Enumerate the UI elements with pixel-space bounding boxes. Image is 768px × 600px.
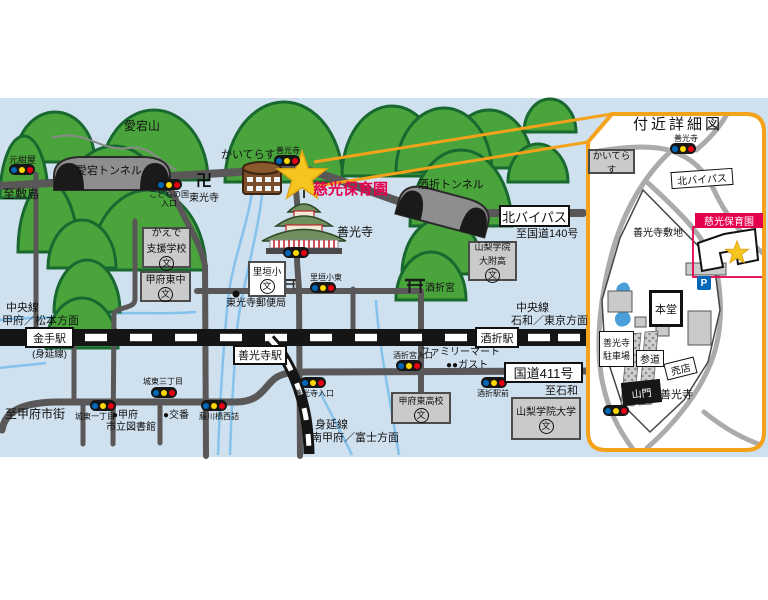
school-mark-icon: 文 xyxy=(414,408,429,423)
kofu-higashi-hs-box: 甲府東高校 文 xyxy=(391,392,451,424)
to-isawa-label: 至石和 xyxy=(545,385,578,398)
kaiterasu-label: かいてらす xyxy=(221,149,275,162)
mountain-label: 愛宕山 xyxy=(124,120,160,134)
rail-dash xyxy=(355,334,377,341)
post-office-dot xyxy=(233,291,240,298)
signal-label-kodomonokuni: こどもの国 入口 xyxy=(143,190,195,208)
kanade-station-box: 金手駅 xyxy=(25,327,74,348)
inset-parking-box: 善光寺 駐車場 xyxy=(599,331,634,367)
rail-dash xyxy=(130,334,152,341)
school-mark-icon: 文 xyxy=(159,256,174,271)
traffic-signal-icon xyxy=(396,360,422,371)
chuo-right-direction-label: 石和／東京方面 xyxy=(511,315,588,328)
to-route140-label: 至国道140号 xyxy=(516,228,578,241)
chuo-left-line-label: 中央線 xyxy=(6,302,39,315)
kaede-school-box: かえで 支援学校 文 xyxy=(142,227,191,268)
familymart-label: ファミリーマート xyxy=(420,347,500,359)
kanade-station-note: (身延線) xyxy=(25,350,74,361)
traffic-signal-icon xyxy=(603,405,629,416)
traffic-signal-icon xyxy=(9,164,35,175)
chuo-right-line-label: 中央線 xyxy=(516,302,549,315)
minobu-direction-label: 南甲府／富士方面 xyxy=(311,432,399,445)
minobu-line-label: 身延線 xyxy=(315,419,348,432)
parking-icon: P xyxy=(697,276,711,290)
school-mark-icon: 文 xyxy=(158,287,173,302)
traffic-signal-icon xyxy=(156,179,182,190)
rail-dash xyxy=(85,334,107,341)
sakaori-tunnel-label: 酒折トンネル xyxy=(418,179,484,192)
signal-label-joto1: 城東一丁目 xyxy=(75,412,115,421)
rail-dash xyxy=(445,334,467,341)
school-mark-icon: 文 xyxy=(485,268,500,283)
signal-label-zenkoji-iriguchi: 善光寺入口 xyxy=(294,389,334,398)
inset-grounds-label: 善光寺敷地 xyxy=(633,228,683,240)
traffic-signal-icon xyxy=(274,155,300,166)
school-mark-icon: 文 xyxy=(539,419,554,434)
rail-dash xyxy=(528,334,550,341)
inset-kaiterasu-box: かいてらす xyxy=(588,149,635,174)
inset-signal-label-zenkoji: 善光寺 xyxy=(674,134,698,143)
rail-dash xyxy=(400,334,422,341)
manji-temple-icon: 卍 xyxy=(196,173,212,191)
school-mark-icon: 文 xyxy=(260,279,275,294)
zenkoji-temple-label: 善光寺 xyxy=(337,226,373,240)
traffic-signal-icon xyxy=(300,377,326,388)
post-office-label: 東光寺郵便局 xyxy=(226,298,286,310)
traffic-signal-icon xyxy=(670,143,696,154)
library-label: ●甲府 市立図書館 xyxy=(112,410,156,433)
yamanashi-gakuin-univ-box: 山梨学院大学 文 xyxy=(511,397,581,440)
rail-dash xyxy=(310,334,332,341)
to-kofu-city-label: 至甲府市街 xyxy=(5,408,65,422)
atago-tunnel-label: 愛宕トンネル xyxy=(76,165,142,178)
koban-label: ●交番 xyxy=(163,410,189,422)
inset-zenkoji-label: 善光寺 xyxy=(660,389,693,402)
inset-sanmon-box: 山門 xyxy=(621,379,662,406)
tokoji-label: 東光寺 xyxy=(189,193,219,205)
kaiterasu-building-icon xyxy=(243,162,281,194)
sakaorigu-label: 酒折宮 xyxy=(425,283,455,295)
signal-label-joto3: 城東三丁目 xyxy=(143,377,183,386)
to-shikishima-label: 至敷島 xyxy=(3,188,39,202)
traffic-signal-icon xyxy=(283,247,309,258)
inset-title: 付近詳細図 xyxy=(618,116,738,133)
signal-label-satogaki-higashi: 里垣小東 xyxy=(310,273,342,282)
sakaori-station-box: 酒折駅 xyxy=(475,327,519,348)
inset-hondo-box: 本堂 xyxy=(649,290,683,327)
yamanashi-gakuin-hs-box: 山梨学院 大附高 文 xyxy=(468,241,517,281)
inset-nursery-label: 慈光保育園 xyxy=(695,213,763,228)
route411-box: 国道411号 xyxy=(504,362,583,383)
signal-label-zenkoji: 善光寺 xyxy=(276,146,300,155)
kofu-higashi-jhs-box: 甲府東中 文 xyxy=(140,271,191,302)
signal-label-fujikawabashi: 藤川橋西詰 xyxy=(199,412,239,421)
rail-dash xyxy=(175,334,197,341)
kita-bypass-box: 北バイパス xyxy=(499,205,570,227)
traffic-signal-icon xyxy=(151,387,177,398)
satogaki-es-box: 里垣小 文 xyxy=(248,261,286,297)
nursery-name-label: 慈光保育園 xyxy=(313,181,388,198)
zenkoji-station-box: 善光寺駅 xyxy=(233,345,287,365)
gusto-label: ●●ガスト xyxy=(446,360,488,372)
traffic-signal-icon xyxy=(310,282,336,293)
chuo-left-direction-label: 甲府／松本方面 xyxy=(2,315,79,328)
access-map: 愛宕山 愛宕トンネル 酒折トンネル 至敷島 至甲府市街 至石和 至国道140号 … xyxy=(0,0,768,600)
rail-dash xyxy=(558,334,580,341)
signal-label-sakaori-ekimae: 酒折駅前 xyxy=(477,389,509,398)
inset-sando-box: 参道 xyxy=(636,350,664,367)
rail-dash xyxy=(220,334,242,341)
traffic-signal-icon xyxy=(201,400,227,411)
